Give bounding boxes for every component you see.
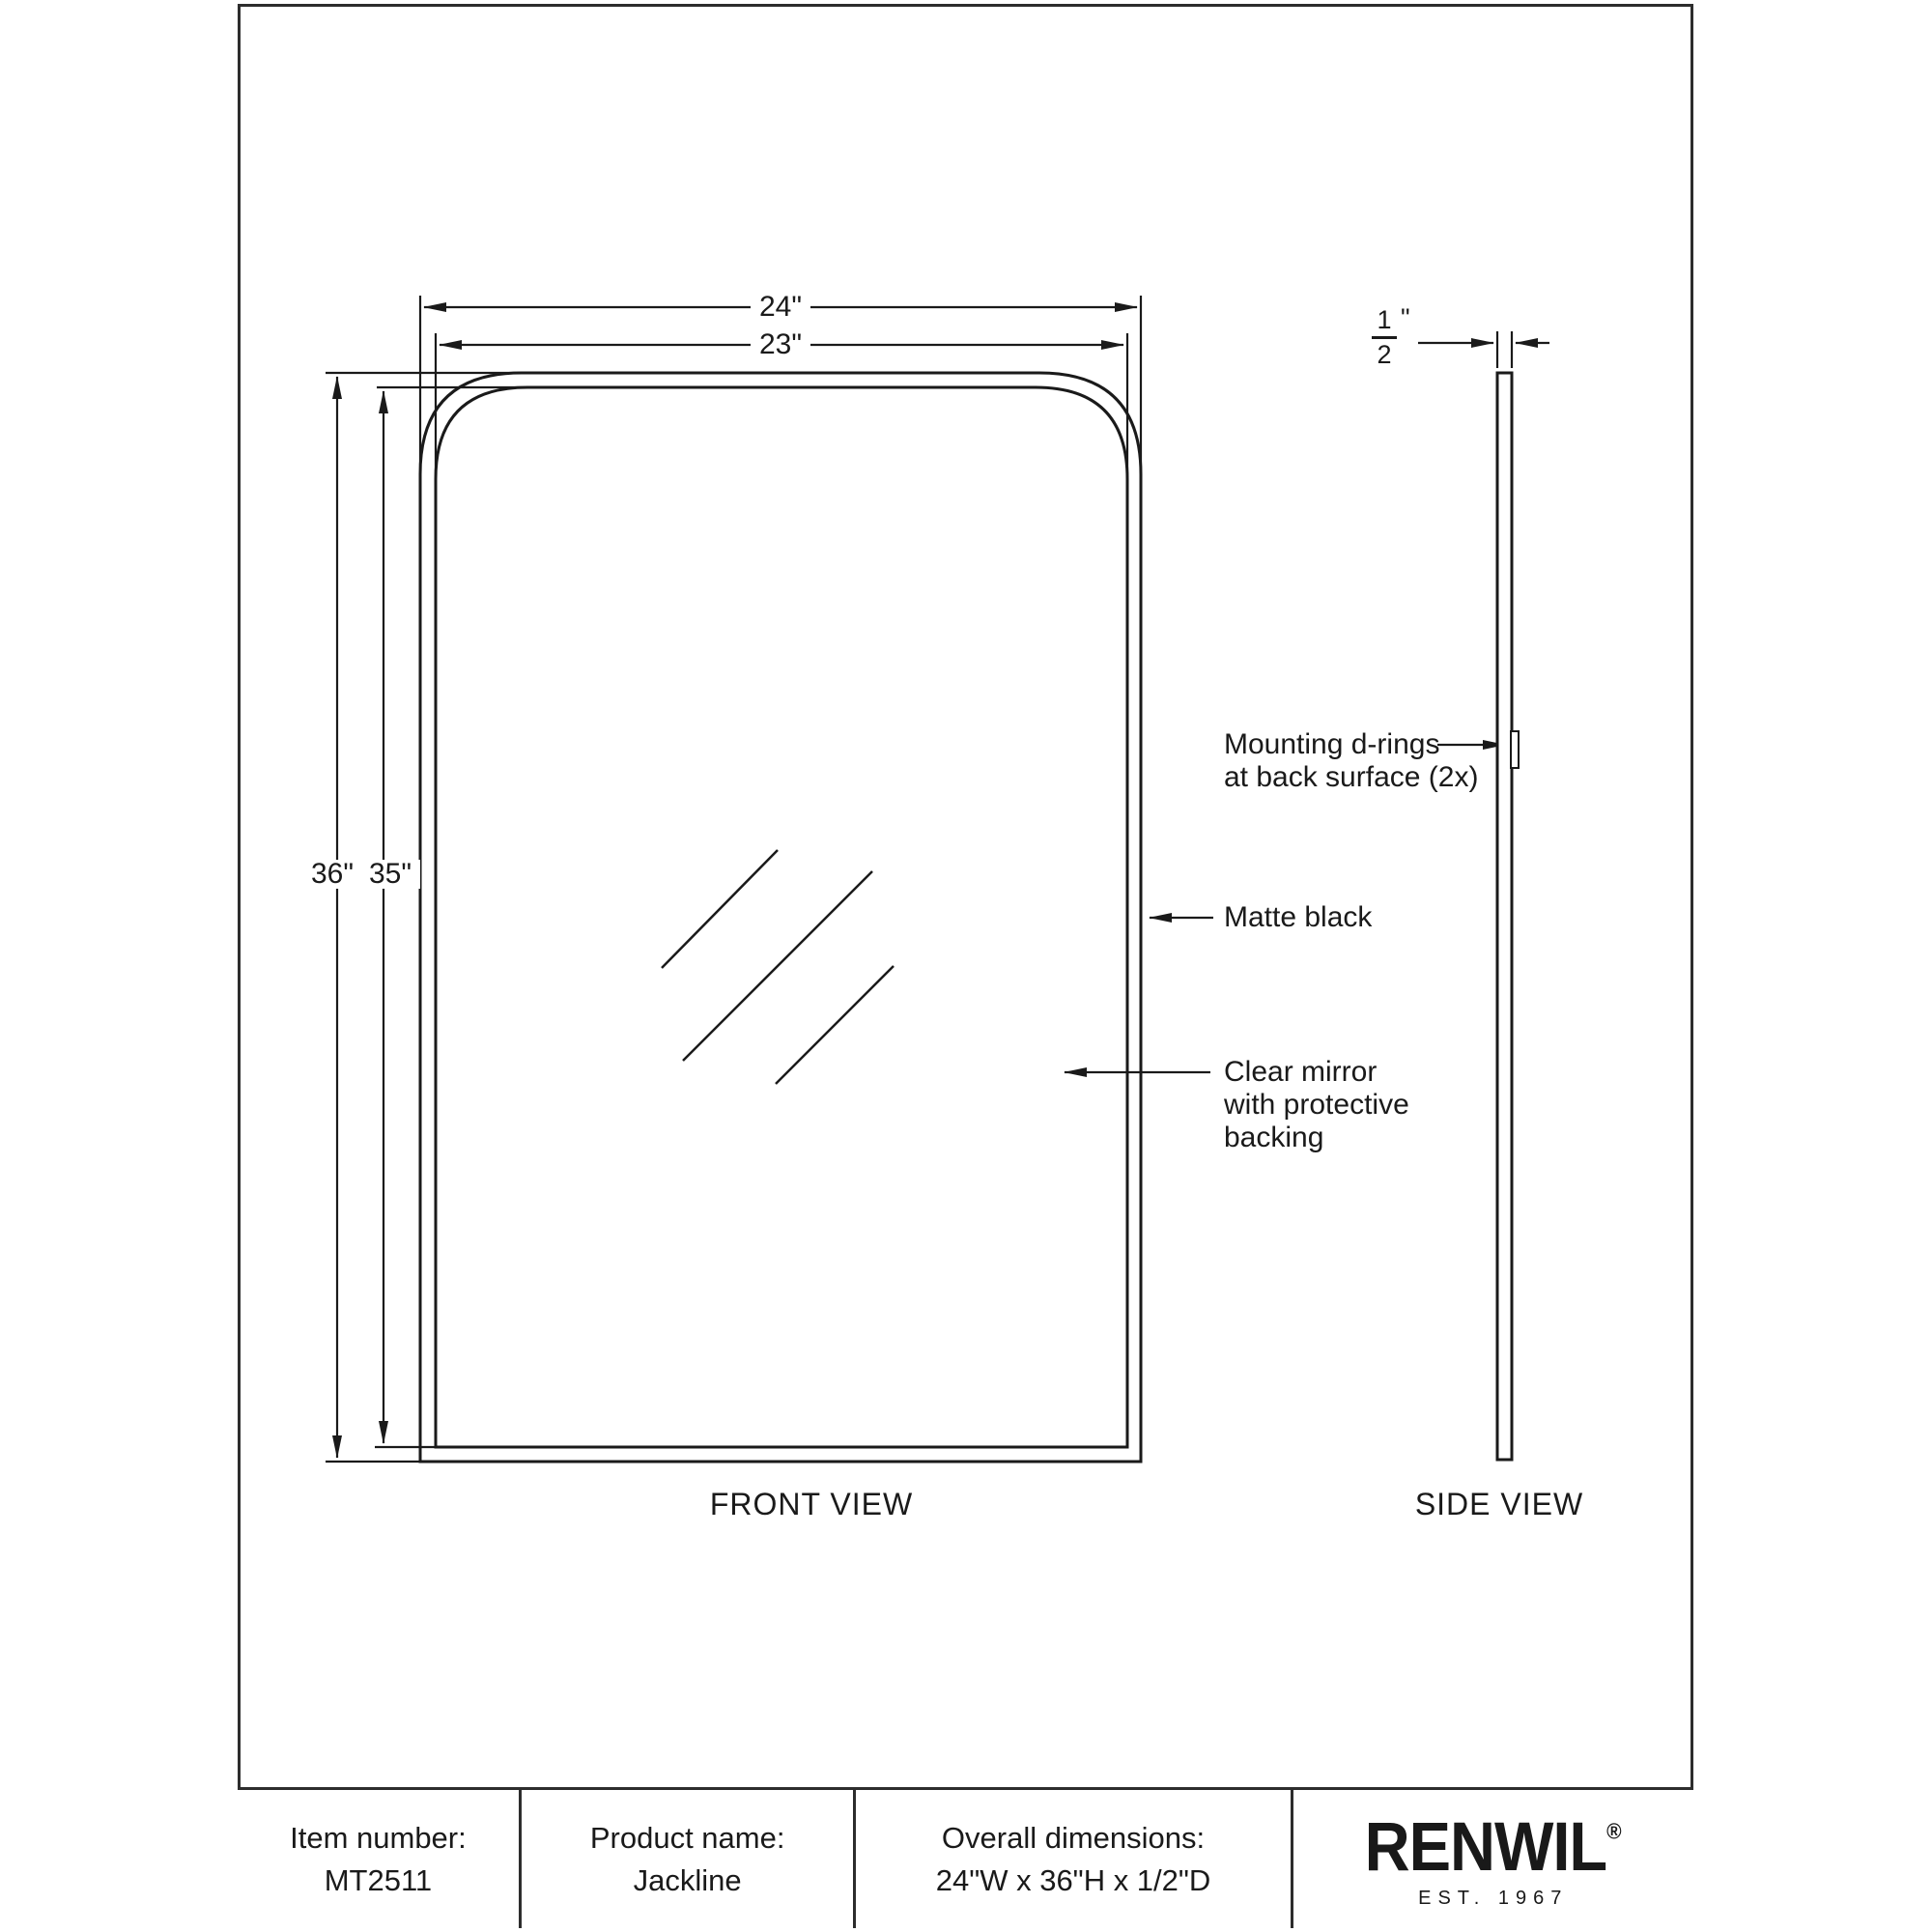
side-thickness-dimension: 1 2 " xyxy=(1370,307,1410,368)
thickness-fraction: 1 2 xyxy=(1370,307,1399,368)
dimension-width-outer: 24" xyxy=(751,293,810,322)
title-block-brand-cell: RENWIL® EST. 1967 xyxy=(1293,1790,1693,1928)
technical-drawing-linework xyxy=(0,0,1932,1932)
front-view-mirror-frame xyxy=(420,373,1141,1462)
dimension-height-outer: 36" xyxy=(311,860,354,889)
annotation-mirror-line2: with protective xyxy=(1224,1089,1409,1122)
side-view-label: SIDE VIEW xyxy=(1415,1489,1583,1520)
annotation-frame-finish: Matte black xyxy=(1224,901,1372,934)
spec-sheet: 24" 23" 36" 35" 1 2 " Mounting d-rings a… xyxy=(0,0,1932,1932)
dimension-lines xyxy=(337,307,1549,1458)
mirror-inner-frame xyxy=(436,387,1127,1447)
mirror-reflection-marks xyxy=(662,850,894,1084)
annotation-mirror-line3: backing xyxy=(1224,1122,1409,1154)
item-number-label: Item number: xyxy=(290,1817,467,1860)
title-block-dimensions-cell: Overall dimensions: 24"W x 36"H x 1/2"D xyxy=(856,1790,1293,1928)
brand-name: RENWIL® xyxy=(1365,1801,1622,1879)
annotation-mounting: Mounting d-rings at back surface (2x) xyxy=(1224,728,1478,794)
extension-lines xyxy=(326,296,1512,1462)
brand-logo: RENWIL® EST. 1967 xyxy=(1371,1811,1615,1908)
overall-dimensions-label: Overall dimensions: xyxy=(942,1817,1205,1860)
item-number-value: MT2511 xyxy=(325,1860,432,1902)
title-block-product-cell: Product name: Jackline xyxy=(522,1790,857,1928)
inch-mark: " xyxy=(1401,307,1410,328)
mounting-d-ring xyxy=(1511,731,1519,768)
fraction-denominator: 2 xyxy=(1377,342,1391,368)
product-name-value: Jackline xyxy=(634,1860,742,1902)
side-view-profile xyxy=(1497,373,1519,1460)
title-block-item-cell: Item number: MT2511 xyxy=(238,1790,522,1928)
dimension-height-labels: 36" 35" xyxy=(302,860,420,889)
dimension-width-inner: 23" xyxy=(751,330,810,359)
fraction-numerator: 1 xyxy=(1377,307,1391,333)
title-block: Item number: MT2511 Product name: Jackli… xyxy=(238,1787,1693,1928)
overall-dimensions-value: 24"W x 36"H x 1/2"D xyxy=(936,1860,1211,1902)
registered-trademark-icon: ® xyxy=(1606,1820,1621,1844)
mirror-outer-frame xyxy=(420,373,1141,1462)
fraction-bar xyxy=(1372,336,1397,339)
annotation-mirror: Clear mirror with protective backing xyxy=(1224,1056,1409,1154)
front-view-label: FRONT VIEW xyxy=(710,1489,913,1520)
annotation-mounting-line1: Mounting d-rings xyxy=(1224,728,1478,761)
annotation-mounting-line2: at back surface (2x) xyxy=(1224,761,1478,794)
brand-established: EST. 1967 xyxy=(1418,1889,1568,1908)
annotation-mirror-line1: Clear mirror xyxy=(1224,1056,1409,1089)
side-view-bar xyxy=(1497,373,1512,1460)
product-name-label: Product name: xyxy=(590,1817,785,1860)
dimension-height-inner: 35" xyxy=(369,860,412,889)
